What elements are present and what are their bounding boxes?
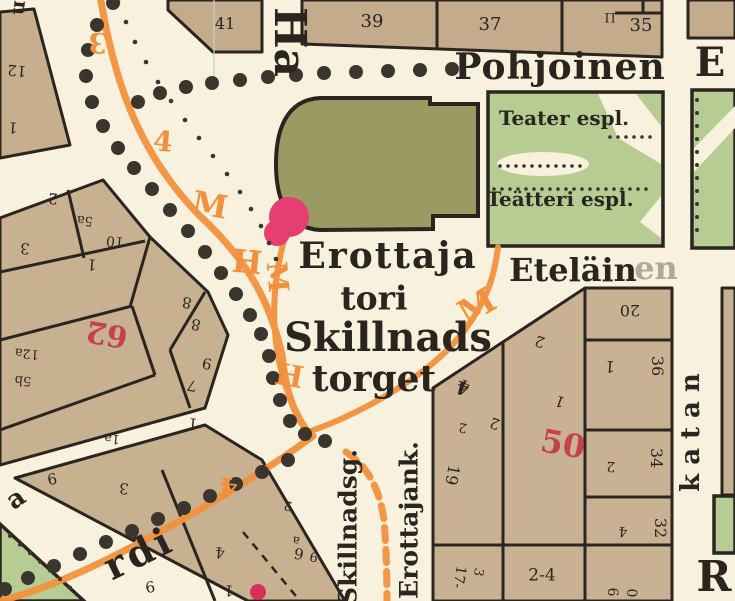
plot-number: 12 <box>7 62 27 79</box>
plot-number: 5a <box>76 213 93 227</box>
vintage-city-map: PohjoinenEHaTeater espl.Teätteri espl.Er… <box>0 0 735 601</box>
plot-number: 8 <box>190 316 202 332</box>
square-tori: tori <box>340 282 407 315</box>
route-marker-black: 4 <box>455 377 472 398</box>
plot-number: 2 <box>533 332 547 349</box>
plot-number: 41 <box>215 16 235 32</box>
plot-number: 6 <box>605 588 619 597</box>
plot-number: 2-4 <box>528 568 555 585</box>
plot-number: 17- <box>450 565 468 590</box>
plot-number: 4 <box>215 544 226 560</box>
street-esplanad-e: E <box>695 43 726 83</box>
plot-number: 1 <box>87 256 98 272</box>
plot-number: 1 <box>604 358 616 375</box>
block-number-50: 50 <box>538 424 587 463</box>
plot-number: 34 <box>648 448 664 468</box>
route-letter: 4 <box>217 472 239 502</box>
street-r: R <box>697 556 732 598</box>
plot-number: 3 <box>119 480 130 496</box>
street-ha: Ha <box>267 7 311 77</box>
plot-number: 9 <box>46 470 58 486</box>
street-pohjoinen: Pohjoinen <box>454 49 665 85</box>
square-torget: torget <box>312 361 436 397</box>
plot-number: 9 <box>144 578 156 594</box>
plot-number: 2 <box>606 459 616 474</box>
square-skillnads: Skillnads <box>284 318 492 358</box>
park-label-teater: Teater espl. <box>499 108 629 128</box>
landmark-symbol: Π <box>604 13 615 26</box>
plot-number: 19 <box>442 464 461 487</box>
plot-number: 2 <box>458 420 468 434</box>
plot-number: 12a <box>14 345 39 360</box>
map-labels: PohjoinenEHaTeater espl.Teätteri espl.Er… <box>0 0 735 601</box>
plot-number: 1 <box>224 582 235 598</box>
plot-number: 36 <box>649 356 665 376</box>
plot-number: 32 <box>652 518 668 538</box>
square-erottaja: Erottaja <box>298 238 477 274</box>
street-erottajank: Erottajank. <box>397 441 422 599</box>
plot-number: 9 <box>201 355 213 371</box>
street-etelainen: Eteläin <box>509 254 637 286</box>
plot-number: 10 <box>106 233 125 249</box>
plot-number: 39 <box>361 13 384 31</box>
plot-number: 4 <box>618 524 628 539</box>
plot-number: 37 <box>479 16 502 34</box>
street-etelainen-faded: en <box>634 252 678 284</box>
plot-number: 2 <box>488 414 502 431</box>
plot-number: 3 <box>471 567 485 577</box>
plot-number: 2 <box>283 498 293 512</box>
plot-number: 20 <box>620 302 640 318</box>
street-katan: katan <box>678 364 704 492</box>
plot-number: 0 <box>624 589 638 598</box>
plot-number: 35 <box>630 17 653 35</box>
route-letter: 3 <box>87 27 109 57</box>
plot-number: 8 <box>181 294 193 310</box>
plot-number: 1 <box>553 392 567 409</box>
street-letter-a: a <box>2 484 31 515</box>
street-skillnadsg: Skillnadsg. <box>336 449 361 601</box>
plot-number: 3 <box>20 240 31 256</box>
plot-number: 5b <box>14 373 32 387</box>
park-label-teatteri: Teätteri espl. <box>486 189 633 209</box>
route-letter: H <box>231 245 264 280</box>
street-rdi: rdi <box>98 520 180 586</box>
street-letter-n: n <box>10 0 31 16</box>
route-letter: H <box>272 360 305 394</box>
plot-number: 2 <box>48 190 59 206</box>
route-letter: 4 <box>152 127 174 157</box>
route-letter: M <box>262 260 293 293</box>
plot-number: 7 <box>186 377 198 393</box>
plot-number: 1 <box>8 119 19 135</box>
block-number-62: 62 <box>84 315 130 352</box>
plot-number: 9 <box>309 549 319 563</box>
plot-number: 1a <box>103 431 120 445</box>
route-letter: M <box>190 186 230 224</box>
plot-number: 1 <box>188 415 199 431</box>
